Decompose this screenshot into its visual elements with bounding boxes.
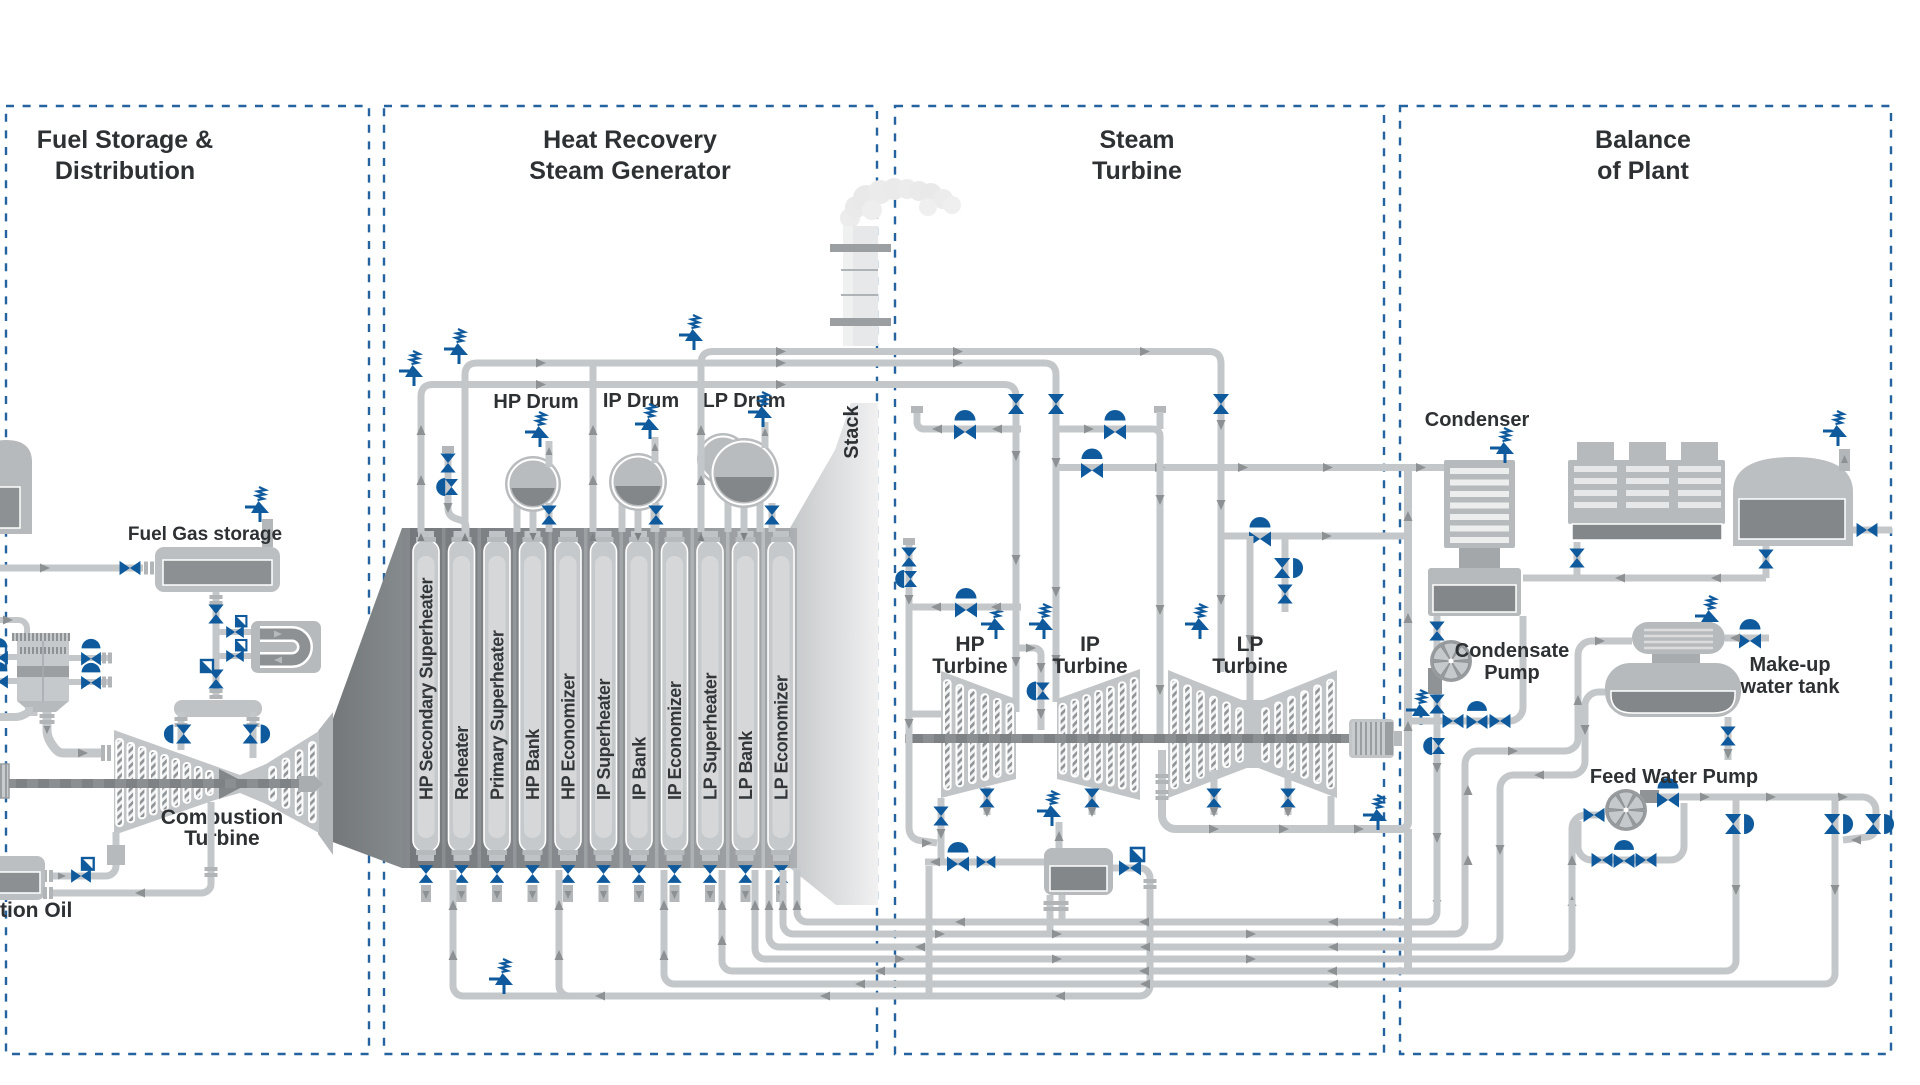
svg-text:IP Superheater: IP Superheater [594,678,614,800]
svg-text:Turbine: Turbine [1212,655,1287,678]
svg-text:Turbine: Turbine [184,827,259,850]
svg-text:HP Drum: HP Drum [493,391,578,413]
svg-text:Combustion: Combustion [161,806,283,829]
svg-text:HP Secondary Superheater: HP Secondary Superheater [417,577,437,800]
svg-text:HP Bank: HP Bank [523,728,543,800]
svg-text:of Plant: of Plant [1597,157,1689,185]
svg-text:IP Drum: IP Drum [603,390,679,412]
svg-text:Turbine: Turbine [1092,157,1182,185]
svg-text:LP: LP [1237,633,1264,656]
svg-text:Balance: Balance [1595,126,1691,154]
svg-text:Fuel Gas storage: Fuel Gas storage [128,524,282,545]
svg-text:HP: HP [955,633,984,656]
svg-text:Primary Superheater: Primary Superheater [488,630,508,800]
svg-text:Pump: Pump [1484,662,1540,684]
svg-text:LP Economizer: LP Economizer [772,675,792,800]
svg-text:IP: IP [1080,633,1100,656]
svg-text:Feed Water Pump: Feed Water Pump [1590,766,1758,788]
svg-text:HP Economizer: HP Economizer [559,673,579,800]
svg-text:LP Bank: LP Bank [736,730,756,800]
svg-text:Reheater: Reheater [452,726,472,800]
svg-text:Condensate: Condensate [1455,640,1569,662]
svg-text:Stack: Stack [841,404,863,458]
svg-text:LP Superheater: LP Superheater [701,672,721,800]
svg-text:IP Bank: IP Bank [630,736,650,800]
svg-text:LP Drum: LP Drum [703,390,786,412]
svg-text:Steam: Steam [1099,126,1174,154]
svg-text:IP Economizer: IP Economizer [665,681,685,800]
svg-text:water tank: water tank [1740,676,1841,698]
svg-text:Combustion Oil: Combustion Oil [0,899,72,922]
svg-text:Fuel Storage &: Fuel Storage & [37,126,213,154]
svg-text:Condenser: Condenser [1425,409,1530,431]
svg-text:Turbine: Turbine [932,655,1007,678]
svg-text:Distribution: Distribution [55,157,195,185]
svg-text:Steam Generator: Steam Generator [529,157,731,185]
svg-text:Make-up: Make-up [1749,654,1830,676]
svg-text:Turbine: Turbine [1052,655,1127,678]
svg-text:Heat Recovery: Heat Recovery [543,126,717,154]
